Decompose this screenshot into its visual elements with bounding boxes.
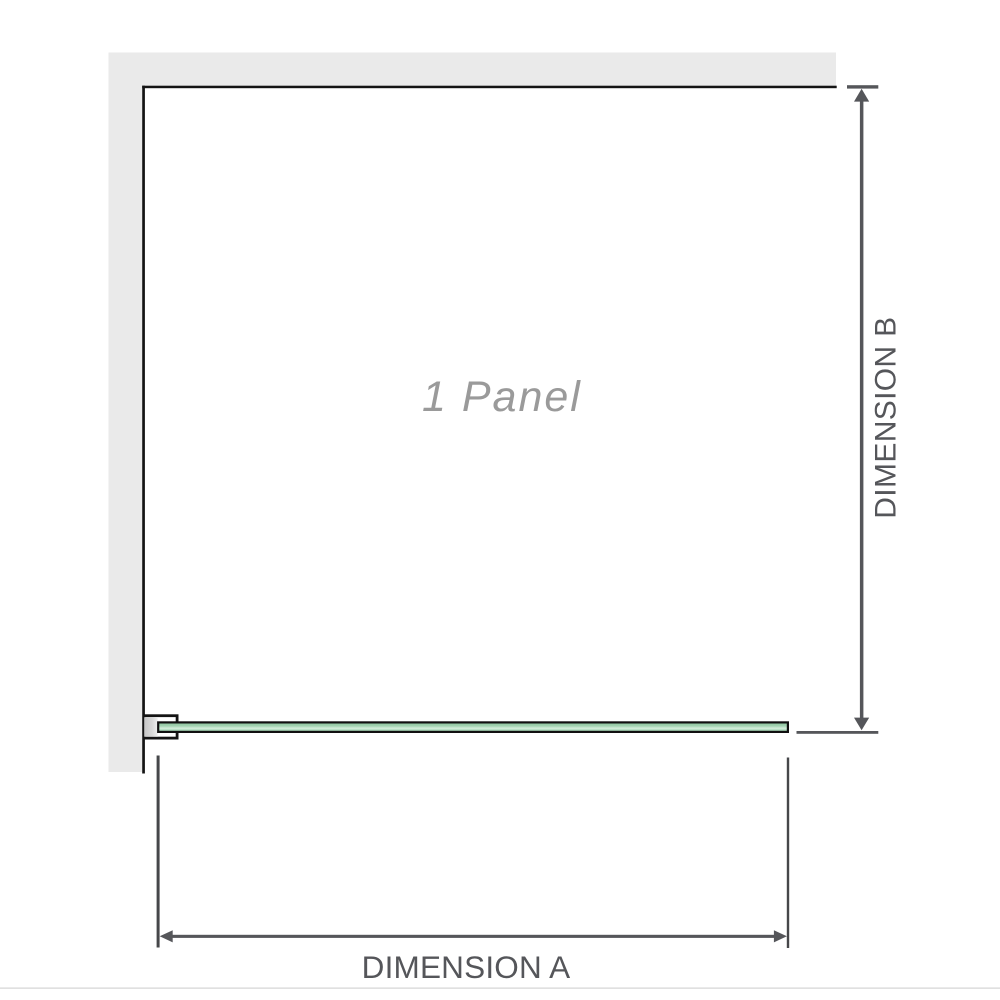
svg-text:DIMENSION A: DIMENSION A <box>362 949 571 985</box>
svg-text:1 Panel: 1 Panel <box>422 373 582 421</box>
svg-text:DIMENSION B: DIMENSION B <box>869 316 902 518</box>
